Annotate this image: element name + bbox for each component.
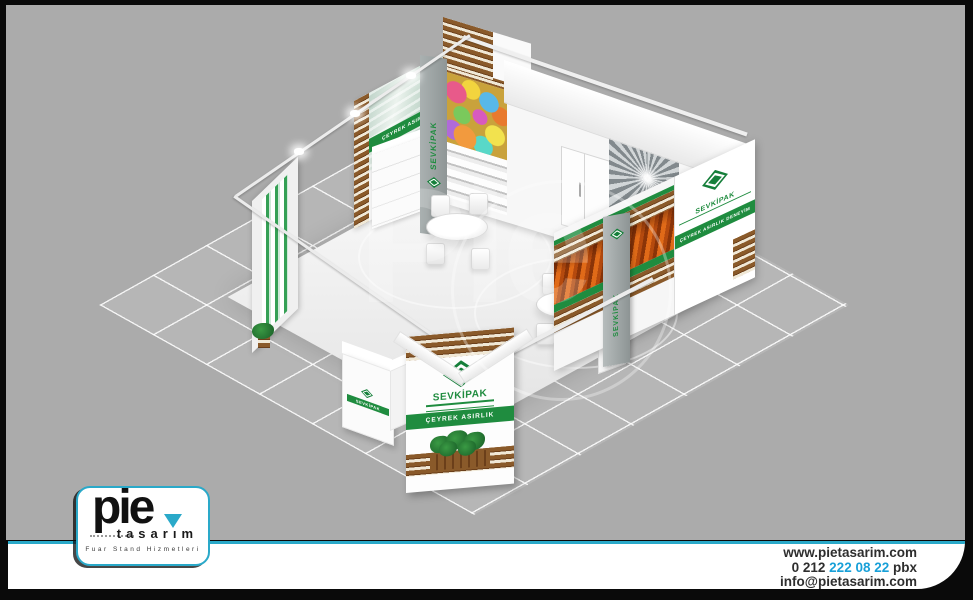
chair	[469, 193, 488, 215]
column-brand-text: SEVKİPAK	[429, 74, 438, 170]
exhibitor-diamond-logo-icon	[702, 164, 728, 196]
meeting-table	[426, 213, 488, 241]
spotlight-icon	[350, 110, 360, 117]
render-scene: ÇEYREK ASIRLIK DENEYİM SEVKİPAK	[6, 5, 965, 543]
render-page: ÇEYREK ASIRLIK DENEYİM SEVKİPAK	[0, 0, 973, 600]
tower-slogan-banner: ÇEYREK ASIRLIK DENEYİM	[406, 406, 514, 430]
phone-line: 0 212 222 08 22 pbx	[780, 561, 917, 576]
phone-suffix: pbx	[889, 560, 917, 575]
exhibitor-diamond-logo-icon	[427, 176, 441, 189]
spotlight-icon	[406, 72, 416, 79]
wood-slat-strip	[733, 229, 755, 279]
logo-tagline: Fuar Stand Hizmetleri	[78, 546, 208, 553]
panel-brand-text: SEVKİPAK	[613, 246, 620, 337]
exhibitor-diamond-logo-icon	[361, 387, 373, 400]
website-text: www.pietasarim.com	[780, 546, 917, 561]
phone-number: 222 08 22	[829, 560, 889, 575]
phone-prefix: 0 212	[792, 560, 830, 575]
logo-subtitle: tasarım	[117, 526, 198, 541]
pie-tasarim-logo: pie tasarım Fuar Stand Hizmetleri	[76, 486, 210, 566]
exhibitor-diamond-logo-icon	[610, 227, 624, 240]
spotlight-icon	[294, 148, 304, 155]
striped-graphic-panel	[262, 174, 288, 335]
door-handle	[579, 182, 581, 197]
chair	[426, 243, 445, 265]
email-text: info@pietasarim.com	[780, 575, 917, 590]
chair	[471, 248, 490, 270]
contact-block: www.pietasarim.com 0 212 222 08 22 pbx i…	[780, 546, 917, 590]
